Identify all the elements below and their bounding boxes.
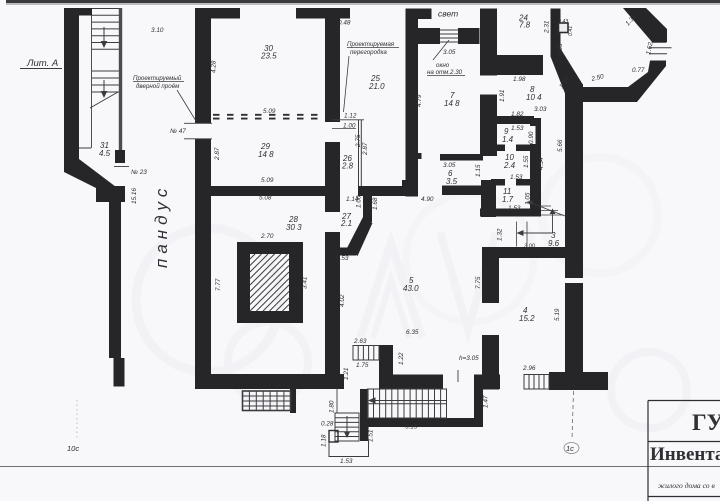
svg-text:15.2: 15.2 <box>519 314 535 323</box>
svg-text:Инвентар: Инвентар <box>650 444 720 465</box>
svg-text:23.5: 23.5 <box>260 52 277 61</box>
svg-text:h=3.05: h=3.05 <box>459 355 479 362</box>
svg-text:1.12: 1.12 <box>344 113 357 120</box>
svg-text:7.75: 7.75 <box>475 276 482 289</box>
svg-text:1.55: 1.55 <box>523 155 530 168</box>
svg-text:7.8: 7.8 <box>519 21 531 30</box>
svg-text:свет: свет <box>438 9 458 19</box>
svg-text:10 4: 10 4 <box>526 93 542 102</box>
svg-text:9.6: 9.6 <box>548 239 560 248</box>
svg-text:3.05: 3.05 <box>443 49 456 56</box>
svg-text:0.77: 0.77 <box>632 67 645 74</box>
svg-text:1.7: 1.7 <box>502 195 514 204</box>
svg-text:5.09: 5.09 <box>261 177 274 184</box>
svg-text:10с: 10с <box>67 444 79 453</box>
svg-text:1.15: 1.15 <box>475 164 482 177</box>
svg-text:2.75: 2.75 <box>355 134 362 148</box>
svg-text:2.1: 2.1 <box>340 219 352 228</box>
svg-text:2.63: 2.63 <box>353 338 367 345</box>
svg-text:пандус: пандус <box>152 184 171 268</box>
svg-text:Проектируемая: Проектируемая <box>347 41 395 48</box>
svg-text:2.8: 2.8 <box>341 162 354 171</box>
svg-text:1.53: 1.53 <box>340 458 353 465</box>
svg-text:5.19: 5.19 <box>554 308 561 321</box>
svg-text:жилого дома со в: жилого дома со в <box>658 481 715 490</box>
svg-text:1.00: 1.00 <box>343 123 356 130</box>
svg-text:1.22: 1.22 <box>398 352 405 365</box>
svg-text:2.4: 2.4 <box>503 161 516 170</box>
svg-text:1.82: 1.82 <box>511 111 524 118</box>
svg-text:43.0: 43.0 <box>403 284 419 293</box>
svg-text:0.48: 0.48 <box>338 20 351 27</box>
svg-text:1.98: 1.98 <box>513 76 526 83</box>
svg-text:3.00: 3.00 <box>524 244 536 250</box>
svg-text:4.28: 4.28 <box>211 60 218 73</box>
svg-text:15.16: 15.16 <box>131 188 138 204</box>
svg-text:0.28: 0.28 <box>321 421 334 428</box>
svg-text:2.87: 2.87 <box>214 147 221 161</box>
svg-text:21.0: 21.0 <box>368 82 385 91</box>
svg-text:3.10: 3.10 <box>151 27 164 34</box>
svg-text:ГУ: ГУ <box>692 410 720 435</box>
svg-text:перегородка: перегородка <box>350 49 387 56</box>
svg-text:окно: окно <box>436 62 450 69</box>
svg-text:0.90: 0.90 <box>528 131 535 144</box>
svg-text:5.15: 5.15 <box>405 424 418 431</box>
svg-text:1.65: 1.65 <box>557 43 564 56</box>
svg-text:0.53: 0.53 <box>336 255 349 262</box>
svg-text:1.53: 1.53 <box>508 205 521 212</box>
svg-text:2.70: 2.70 <box>260 233 274 240</box>
svg-text:3.03: 3.03 <box>534 106 547 113</box>
svg-text:1.75: 1.75 <box>356 362 369 369</box>
svg-text:на отм.2.30: на отм.2.30 <box>427 69 463 76</box>
svg-text:3.05: 3.05 <box>443 162 456 169</box>
svg-text:дверной проём: дверной проём <box>136 83 180 90</box>
svg-text:1.21: 1.21 <box>343 367 350 380</box>
svg-text:1.18: 1.18 <box>321 434 328 447</box>
svg-text:2.87: 2.87 <box>362 142 369 156</box>
svg-text:14 8: 14 8 <box>258 150 274 159</box>
svg-text:1.51: 1.51 <box>368 429 375 442</box>
svg-text:1.05: 1.05 <box>525 192 532 205</box>
svg-text:5.08: 5.08 <box>259 195 272 202</box>
svg-text:1.91: 1.91 <box>499 89 506 102</box>
svg-text:№ 23: № 23 <box>131 169 147 176</box>
svg-text:30 3: 30 3 <box>286 223 302 232</box>
svg-text:№ 47: № 47 <box>170 128 186 135</box>
svg-text:14 8: 14 8 <box>444 99 460 108</box>
svg-text:4.5: 4.5 <box>99 149 111 158</box>
svg-text:1.00: 1.00 <box>356 195 363 208</box>
svg-text:4.79: 4.79 <box>416 94 423 107</box>
svg-text:3.41: 3.41 <box>302 276 309 289</box>
svg-text:4.90: 4.90 <box>421 196 434 203</box>
svg-text:1.68: 1.68 <box>372 197 379 210</box>
svg-text:0.41: 0.41 <box>568 26 574 36</box>
svg-text:Лит. А: Лит. А <box>26 58 58 69</box>
svg-text:4.54: 4.54 <box>538 157 545 170</box>
svg-text:7.77: 7.77 <box>215 278 222 291</box>
svg-text:6.35: 6.35 <box>406 329 419 336</box>
svg-text:2.96: 2.96 <box>522 365 536 372</box>
svg-text:4.02: 4.02 <box>339 294 346 307</box>
svg-text:5.66: 5.66 <box>557 139 564 152</box>
svg-text:1.80: 1.80 <box>329 400 336 413</box>
svg-text:2.31: 2.31 <box>544 20 551 34</box>
svg-text:3.5: 3.5 <box>446 177 458 186</box>
svg-text:1с: 1с <box>566 444 574 453</box>
svg-text:1.47: 1.47 <box>483 395 490 408</box>
svg-text:1.53: 1.53 <box>511 125 524 132</box>
svg-text:1.53: 1.53 <box>510 174 523 181</box>
svg-text:Проектируемый: Проектируемый <box>133 75 182 82</box>
svg-text:5.09: 5.09 <box>263 108 276 115</box>
svg-text:1.32: 1.32 <box>497 228 504 241</box>
svg-text:0.43: 0.43 <box>558 19 568 25</box>
svg-text:1.4: 1.4 <box>502 135 514 144</box>
